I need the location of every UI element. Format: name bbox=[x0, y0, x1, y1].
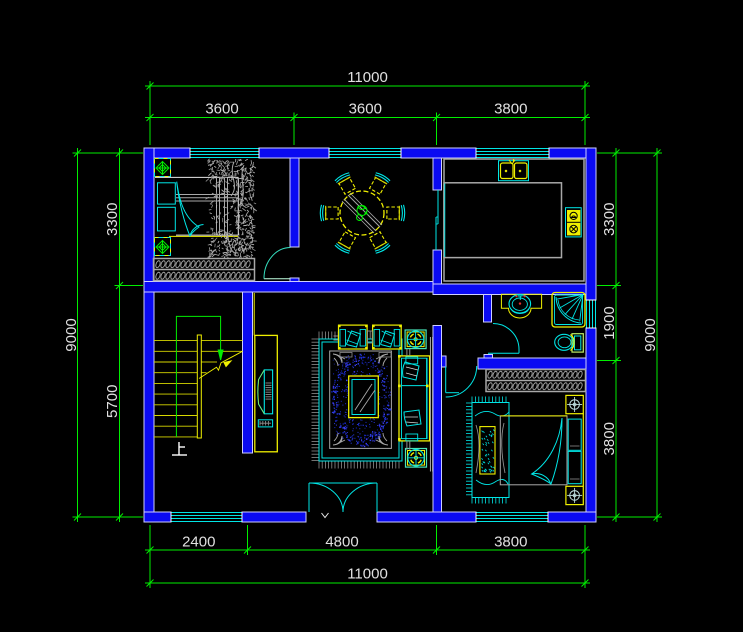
svg-text:1900: 1900 bbox=[601, 306, 618, 339]
svg-text:3600: 3600 bbox=[349, 101, 382, 118]
svg-text:3300: 3300 bbox=[104, 203, 121, 236]
svg-text:3800: 3800 bbox=[494, 101, 527, 118]
svg-text:9000: 9000 bbox=[642, 318, 659, 351]
svg-text:11000: 11000 bbox=[347, 566, 388, 583]
svg-text:2400: 2400 bbox=[182, 534, 215, 551]
svg-text:5700: 5700 bbox=[104, 385, 121, 418]
svg-text:3600: 3600 bbox=[205, 101, 238, 118]
svg-text:11000: 11000 bbox=[347, 69, 388, 86]
svg-text:9000: 9000 bbox=[63, 318, 80, 351]
svg-text:3800: 3800 bbox=[601, 422, 618, 455]
svg-text:4800: 4800 bbox=[325, 534, 358, 551]
svg-text:3800: 3800 bbox=[494, 534, 527, 551]
svg-text:3300: 3300 bbox=[601, 203, 618, 236]
